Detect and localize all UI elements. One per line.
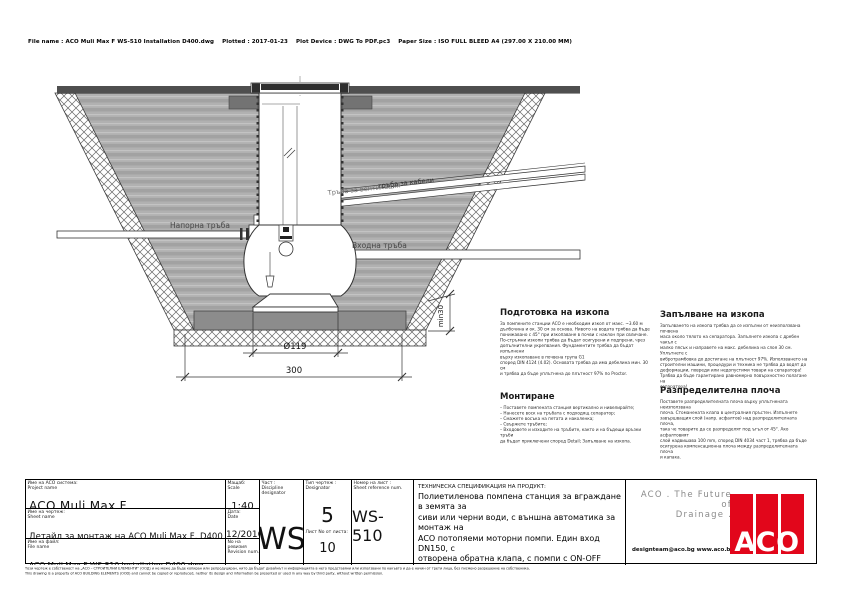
dim-depth-label: min30: [437, 305, 445, 327]
cell-sheet-ref: Номер на лист : Sheet reference num. WS-…: [352, 480, 414, 565]
brand-tagline-2: Drainage .: [636, 510, 732, 520]
sheet-name-label-en: Sheet name: [28, 515, 55, 520]
discipline-value: WS: [260, 511, 303, 565]
file-name-value: ACO Muli Max F WS-510 Installation D400.…: [26, 560, 225, 565]
designator-label-en: Designator: [306, 486, 331, 491]
scale-value: 1:40: [226, 501, 259, 509]
pressure-pipe-label: Напорна тръба: [170, 221, 230, 230]
drawing-sheet: File name : ACO Muli Max F WS-510 Instal…: [0, 0, 842, 595]
cover-assembly: [251, 76, 349, 96]
note-backfilling-title: Запълване на изкопа: [660, 310, 812, 320]
discipline-label-en: Discipline designator: [262, 486, 286, 496]
date-value: 12/2016: [226, 530, 259, 539]
note-distribution-plate-title: Разпределителна плоча: [660, 386, 812, 396]
spec-title: ТЕХНИЧЕСКА СПЕЦИФИКАЦИЯ НА ПРОДУКТ:: [418, 483, 621, 490]
designator-value: 5: [304, 501, 351, 529]
cell-sheet-name: Име на чертеж: Sheet name Детайл за монт…: [26, 509, 226, 539]
title-block: Име на ACO система: Project name ACO Mul…: [25, 479, 817, 564]
sheet-name-value: Детайл за монтаж на ACO Muli Max F, D400: [26, 530, 225, 539]
foundation-slab: [194, 311, 406, 330]
scale-label-en: Scale: [228, 486, 240, 491]
access-shaft: [258, 93, 342, 225]
note-mounting-title: Монтиране: [500, 392, 652, 402]
aco-logo-text: ACO: [730, 529, 804, 556]
note-mounting-body: – Поставете помпената станция вертикално…: [500, 405, 652, 444]
sheet-ref-label-en: Sheet reference num.: [354, 486, 403, 491]
cell-project-name: Име на ACO система: Project name ACO Mul…: [26, 480, 226, 509]
cell-file-name: Име на файл: File name ACO Muli Max F WS…: [26, 539, 226, 565]
inlet-pipe-label: Входна тръба: [352, 241, 407, 250]
cell-brand: ACO . The Future of Drainage . designtea…: [626, 480, 818, 565]
revision-label-bg: No на ревизия: [228, 540, 247, 550]
cell-revision: No на ревизия Revision num. 0: [226, 539, 260, 565]
cell-discipline: Част : Discipline designator WS: [260, 480, 304, 565]
cell-scale: Мащаб: Scale 1:40: [226, 480, 260, 509]
note-backfilling-body: Запълването на изкопа трябва да се изпъл…: [660, 323, 812, 390]
spec-body: Полиетиленова помпена станция за вгражда…: [418, 492, 621, 565]
dim-width-label: 300: [286, 366, 302, 376]
note-distribution-plate-body: Поставете разпределителната плоча върху …: [660, 399, 812, 460]
sheet-ref-value: WS-510: [352, 501, 413, 551]
disclaimer-english: This drawing is a property of ACO BUILDI…: [25, 571, 817, 576]
aco-logo: ACO: [730, 494, 804, 554]
footer-disclaimer: Този чертеж е собственост на „АСО – СТРО…: [25, 566, 817, 586]
project-name-label-en: Project name: [28, 486, 58, 491]
note-preparation-title: Подготовка на изкопа: [500, 308, 652, 318]
file-name-label-en: File name: [28, 545, 50, 550]
cell-designator: Тип чертеж : Designator 5 Лист No от лис…: [304, 480, 352, 565]
cell-date: Дата: Date 12/2016: [226, 509, 260, 539]
sheet-count-value: 10: [304, 540, 351, 556]
project-name-value: ACO Muli Max F: [26, 499, 225, 509]
brand-tagline-1: ACO . The Future of: [636, 490, 732, 510]
cell-spec: ТЕХНИЧЕСКА СПЕЦИФИКАЦИЯ НА ПРОДУКТ: Поли…: [414, 480, 626, 565]
sheet-count-label: Лист No от листа:: [304, 529, 352, 535]
note-preparation-body: За помпените станции ACO е необходим изк…: [500, 321, 652, 376]
revision-label-en: Revision num.: [228, 550, 260, 555]
date-label-en: Date: [228, 515, 239, 520]
note-mounting: Монтиране – Поставете помпената станция …: [500, 392, 652, 483]
dim-diameter-label: Ø119: [284, 341, 307, 352]
